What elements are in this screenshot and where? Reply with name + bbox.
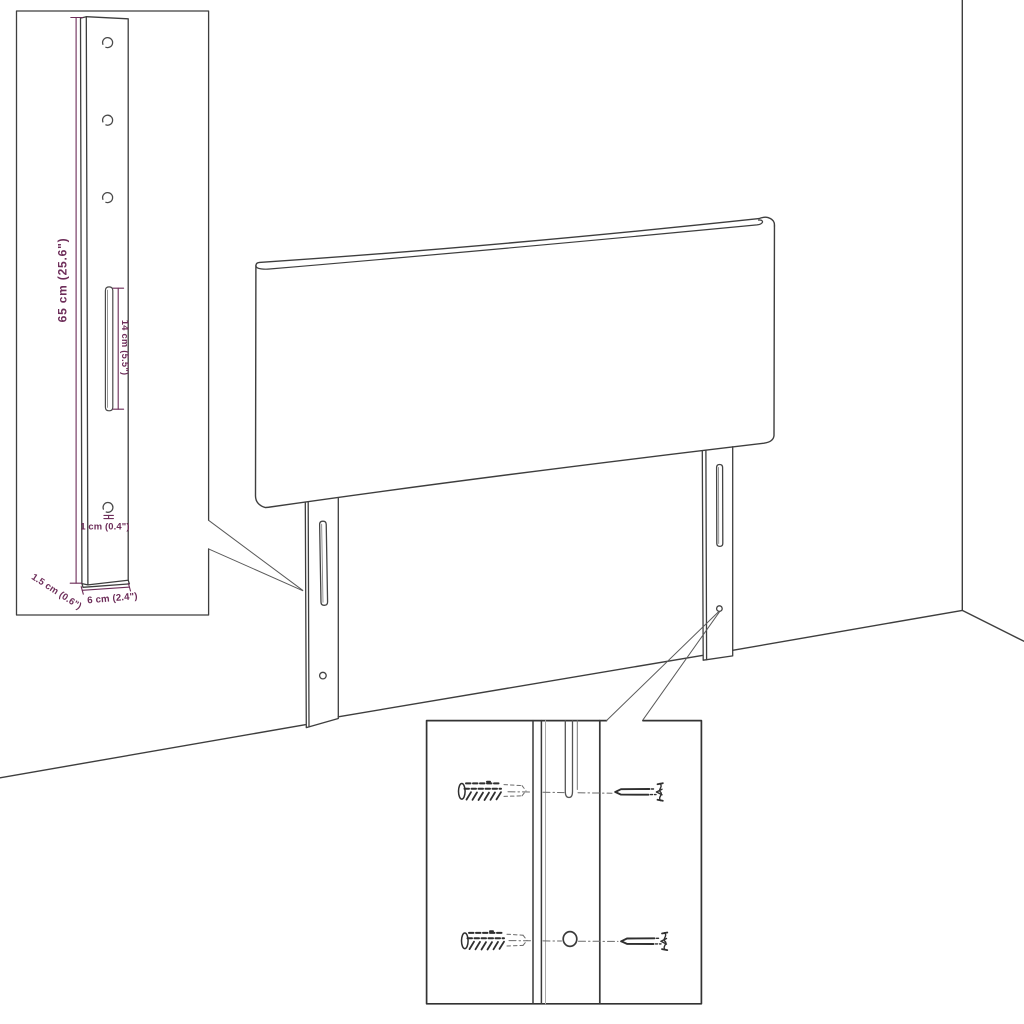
svg-text:1 cm (0.4"): 1 cm (0.4") — [80, 520, 129, 531]
svg-text:65 cm (25.6"): 65 cm (25.6") — [55, 238, 69, 323]
svg-text:14 cm (5.5"): 14 cm (5.5") — [120, 320, 130, 375]
